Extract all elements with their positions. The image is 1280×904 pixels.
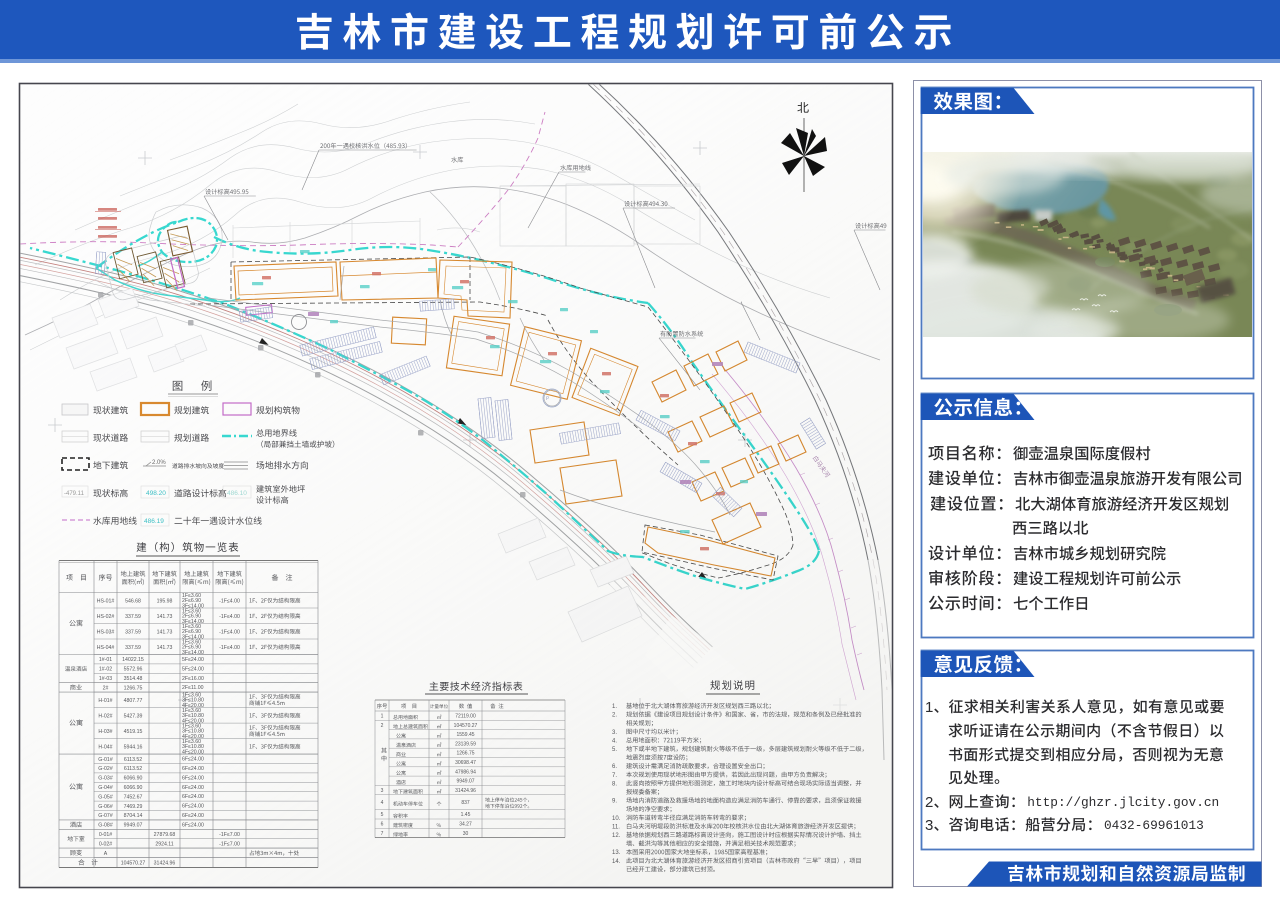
svg-text:6066.90: 6066.90 xyxy=(124,785,143,791)
svg-text:G-04#: G-04# xyxy=(98,785,113,791)
svg-text:47986.94: 47986.94 xyxy=(455,769,476,775)
svg-text:11.: 11. xyxy=(612,824,620,830)
svg-text:34.27: 34.27 xyxy=(459,821,472,827)
svg-text:G-06#: G-06# xyxy=(98,804,113,810)
svg-text:1266.75: 1266.75 xyxy=(456,751,474,757)
svg-text:2F≤16.00: 2F≤16.00 xyxy=(182,676,204,682)
svg-text:0-02#: 0-02# xyxy=(99,841,112,847)
svg-text:3F≤14.00: 3F≤14.00 xyxy=(182,650,204,656)
svg-text:6F≤24.00: 6F≤24.00 xyxy=(182,804,204,810)
svg-text:-1F≤4.00: -1F≤4.00 xyxy=(219,614,240,620)
svg-text:6F≤24.00: 6F≤24.00 xyxy=(182,785,204,791)
svg-text:1266.75: 1266.75 xyxy=(124,685,143,691)
svg-text:G-02#: G-02# xyxy=(98,766,113,772)
svg-text:G-07#: G-07# xyxy=(98,813,113,819)
svg-text:23139.59: 23139.59 xyxy=(455,741,476,747)
svg-text:1.45: 1.45 xyxy=(461,812,471,818)
svg-text:6113.52: 6113.52 xyxy=(124,757,142,763)
svg-text:72119.00: 72119.00 xyxy=(455,713,476,719)
svg-text:4519.15: 4519.15 xyxy=(124,729,143,735)
svg-text:3: 3 xyxy=(925,817,933,834)
svg-text:546.68: 546.68 xyxy=(125,598,141,604)
svg-text:-1F≤4.00: -1F≤4.00 xyxy=(219,629,240,635)
svg-text:30: 30 xyxy=(463,831,469,837)
svg-text:12.: 12. xyxy=(612,833,621,839)
svg-text:G-01#: G-01# xyxy=(98,757,113,763)
svg-text:6F≤24.00: 6F≤24.00 xyxy=(182,794,204,800)
svg-text:498.20: 498.20 xyxy=(146,490,166,497)
svg-text:337.59: 337.59 xyxy=(125,614,141,620)
svg-text:195.98: 195.98 xyxy=(157,598,173,604)
svg-text:5: 5 xyxy=(381,812,384,818)
svg-text:HS-01#: HS-01# xyxy=(97,598,115,604)
svg-text:H-04#: H-04# xyxy=(98,744,112,750)
svg-text:-479.11: -479.11 xyxy=(64,491,85,497)
svg-text:7452.67: 7452.67 xyxy=(124,794,143,800)
svg-text:4.: 4. xyxy=(612,738,617,744)
svg-text:141.73: 141.73 xyxy=(157,629,173,635)
svg-text:7469.29: 7469.29 xyxy=(124,804,143,810)
svg-text:3.: 3. xyxy=(612,730,617,736)
svg-text:141.73: 141.73 xyxy=(157,614,173,620)
svg-text:H-03#: H-03# xyxy=(98,729,112,735)
svg-text:2: 2 xyxy=(925,794,933,811)
svg-text:G-08#: G-08# xyxy=(98,823,113,829)
svg-text:2.: 2. xyxy=(612,713,617,719)
svg-text:-1F≤7.00: -1F≤7.00 xyxy=(219,832,240,838)
svg-text:9949.07: 9949.07 xyxy=(124,823,143,829)
svg-text:30698.47: 30698.47 xyxy=(455,760,476,766)
svg-text:3: 3 xyxy=(381,788,384,794)
svg-text:0432-69961013: 0432-69961013 xyxy=(1104,818,1204,833)
svg-text:5.: 5. xyxy=(612,747,617,753)
svg-text:5F≤24.00: 5F≤24.00 xyxy=(182,666,204,672)
svg-text:486.19: 486.19 xyxy=(144,518,164,525)
svg-text:8704.14: 8704.14 xyxy=(124,813,143,819)
svg-text:6F≤24.00: 6F≤24.00 xyxy=(182,775,204,781)
svg-text:3514.48: 3514.48 xyxy=(124,676,143,682)
svg-text:4F≤20.00: 4F≤20.00 xyxy=(182,749,204,755)
svg-text:G-03#: G-03# xyxy=(98,776,113,782)
svg-text:1: 1 xyxy=(381,713,384,719)
svg-text:6066.90: 6066.90 xyxy=(124,776,143,782)
svg-text:2F≤11.00: 2F≤11.00 xyxy=(182,685,204,691)
svg-text:31424.96: 31424.96 xyxy=(455,788,476,794)
svg-text:104570.27: 104570.27 xyxy=(454,723,478,729)
svg-text:14.: 14. xyxy=(612,859,621,865)
svg-text:H-01#: H-01# xyxy=(98,698,112,704)
svg-text:9.: 9. xyxy=(612,799,617,805)
svg-text:1#-02: 1#-02 xyxy=(99,667,112,673)
svg-text:7: 7 xyxy=(381,831,384,837)
svg-text:2#: 2# xyxy=(103,685,109,691)
svg-text:6: 6 xyxy=(381,821,384,827)
svg-text:5944.16: 5944.16 xyxy=(124,744,143,750)
svg-text:2.0%: 2.0% xyxy=(152,460,166,466)
svg-text:6113.52: 6113.52 xyxy=(124,766,142,772)
svg-text:337.59: 337.59 xyxy=(125,645,141,651)
svg-text:337.59: 337.59 xyxy=(125,629,141,635)
svg-text:-1F≤4.00: -1F≤4.00 xyxy=(219,598,240,604)
svg-text:8.: 8. xyxy=(612,781,617,787)
svg-text:6F≤24.00: 6F≤24.00 xyxy=(182,822,204,828)
svg-text:1559.45: 1559.45 xyxy=(456,732,474,738)
svg-text:6F≤24.00: 6F≤24.00 xyxy=(182,813,204,819)
svg-text:-1F≤4.00: -1F≤4.00 xyxy=(219,645,240,651)
svg-text:5572.96: 5572.96 xyxy=(124,667,143,673)
svg-text:HS-02#: HS-02# xyxy=(97,614,115,620)
svg-text:0-01#: 0-01# xyxy=(99,832,112,838)
svg-text:2: 2 xyxy=(381,723,384,729)
svg-text:1#-01: 1#-01 xyxy=(99,657,112,663)
svg-text:10.: 10. xyxy=(612,816,621,822)
svg-text:141.73: 141.73 xyxy=(157,645,173,651)
svg-text:1#-03: 1#-03 xyxy=(99,676,112,682)
svg-text:H-02#: H-02# xyxy=(98,713,112,719)
svg-text:6F≤24.00: 6F≤24.00 xyxy=(182,766,204,772)
svg-text:486.10: 486.10 xyxy=(227,490,247,497)
svg-text:HS-03#: HS-03# xyxy=(97,629,115,635)
svg-text:http://ghzr.jlcity.gov.cn: http://ghzr.jlcity.gov.cn xyxy=(1027,795,1219,810)
svg-text:2924.11: 2924.11 xyxy=(155,841,173,847)
svg-text:G-05#: G-05# xyxy=(98,794,113,800)
svg-text:A: A xyxy=(104,851,108,857)
svg-text:13.: 13. xyxy=(612,850,621,856)
svg-text:31424.96: 31424.96 xyxy=(154,861,176,867)
svg-text:6.: 6. xyxy=(612,764,617,770)
svg-text:104570.27: 104570.27 xyxy=(121,861,146,867)
svg-text:4: 4 xyxy=(381,800,384,806)
svg-text:1.: 1. xyxy=(612,704,617,710)
svg-text:6F≤24.00: 6F≤24.00 xyxy=(182,757,204,763)
svg-text:-1F≤7.00: -1F≤7.00 xyxy=(219,841,240,847)
svg-text:5427.39: 5427.39 xyxy=(124,713,143,719)
svg-text:837: 837 xyxy=(461,800,470,806)
svg-text:14022.15: 14022.15 xyxy=(122,657,144,663)
svg-text:9949.07: 9949.07 xyxy=(456,779,474,785)
svg-text:4807.77: 4807.77 xyxy=(124,698,143,704)
svg-text:27879.68: 27879.68 xyxy=(154,832,176,838)
svg-text:HS-04#: HS-04# xyxy=(97,645,115,651)
svg-text:5F≤24.00: 5F≤24.00 xyxy=(182,657,204,663)
svg-text:7.: 7. xyxy=(612,773,617,779)
svg-text:1: 1 xyxy=(925,699,933,716)
